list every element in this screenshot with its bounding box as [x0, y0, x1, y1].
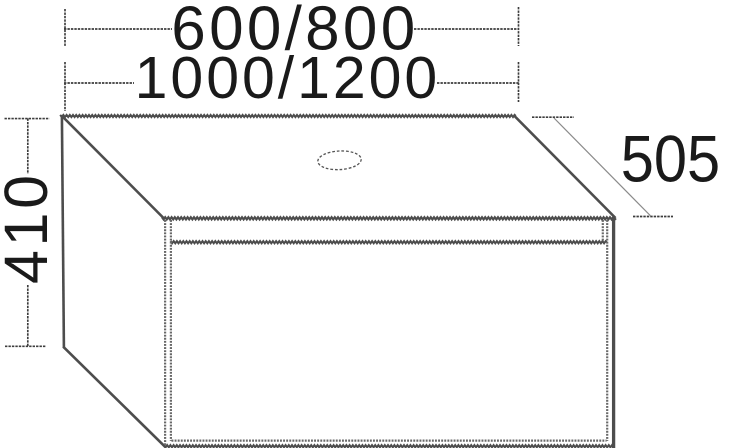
svg-text:410: 410 — [0, 171, 60, 284]
svg-text:505: 505 — [621, 123, 720, 196]
svg-text:1000/1200: 1000/1200 — [135, 45, 440, 111]
